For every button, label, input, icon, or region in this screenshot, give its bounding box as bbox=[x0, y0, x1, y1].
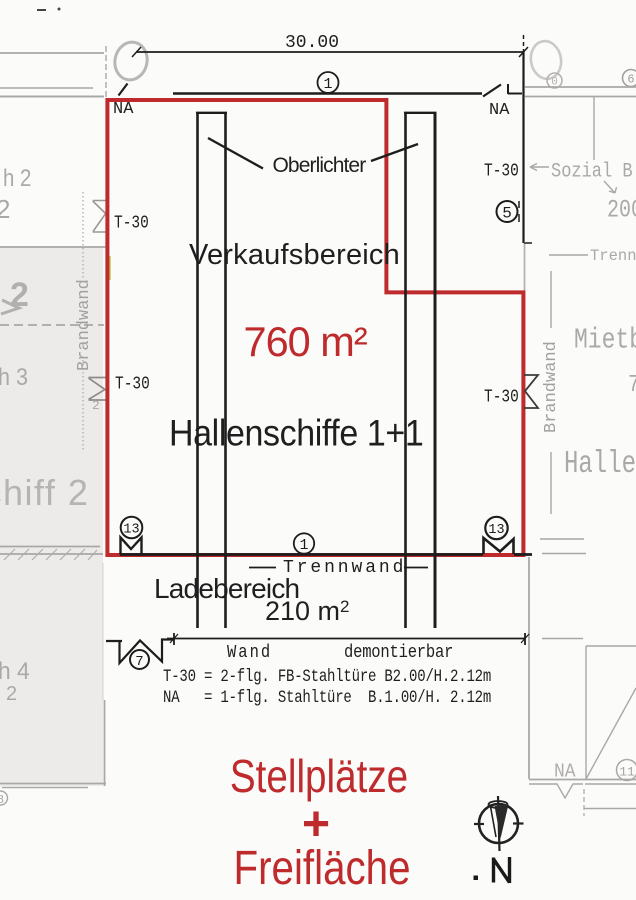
svg-text:0: 0 bbox=[551, 77, 558, 89]
svg-text:1: 1 bbox=[299, 537, 308, 554]
svg-text:1: 1 bbox=[323, 76, 332, 93]
svg-text:8: 8 bbox=[0, 793, 4, 807]
svg-text:13: 13 bbox=[123, 523, 139, 538]
svg-text:6: 6 bbox=[627, 73, 634, 87]
svg-text:13: 13 bbox=[488, 523, 504, 538]
svg-text:7: 7 bbox=[135, 654, 143, 670]
svg-text:11: 11 bbox=[619, 765, 635, 780]
svg-text:5: 5 bbox=[502, 205, 512, 223]
